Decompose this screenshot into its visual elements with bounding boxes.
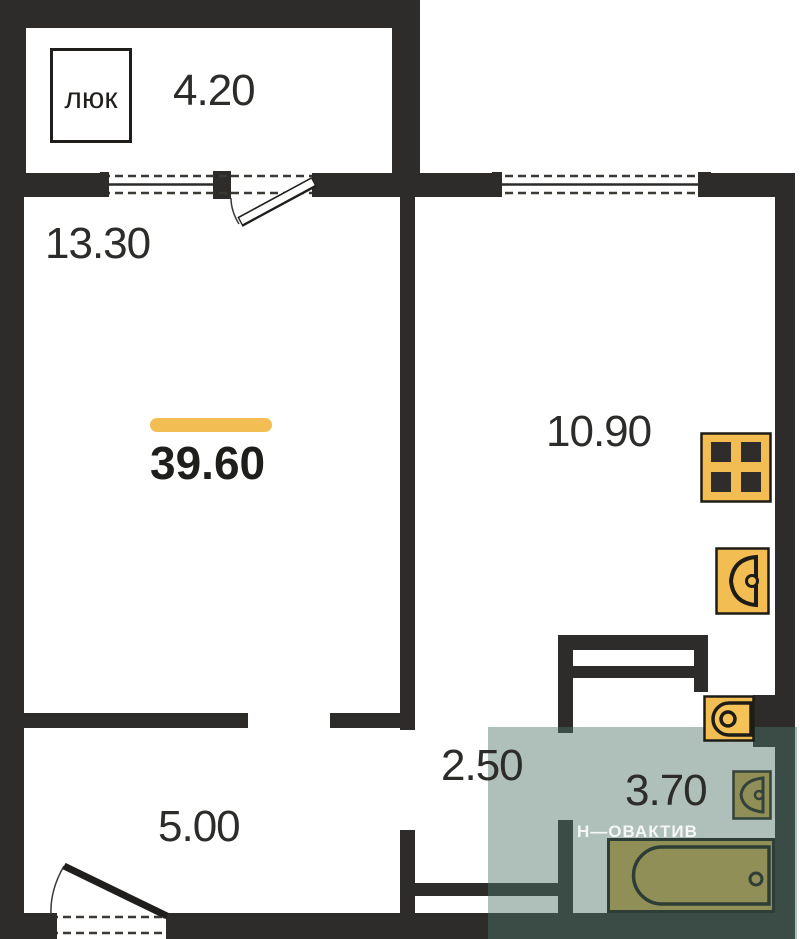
stove-icon [700,432,772,503]
toilet-icon [703,695,755,742]
area-label-kitchen: 10.90 [546,410,651,454]
balcony-window [100,172,230,197]
watermark: Н—ОВАКТИВ [577,822,698,842]
accent-bar [150,418,272,432]
kitchen-sink-icon [715,547,770,615]
total-area-label: 39.60 [150,440,265,486]
kitchen-window [492,172,711,197]
balcony-door [231,176,314,224]
area-label-balcony: 4.20 [173,69,255,113]
entrance-door [50,866,173,939]
area-label-corridor: 2.50 [441,744,523,788]
floor-plan: люк [0,0,800,939]
area-label-living: 13.30 [45,222,150,266]
area-label-hallway: 5.00 [158,805,240,849]
area-label-bathroom: 3.70 [625,769,707,813]
